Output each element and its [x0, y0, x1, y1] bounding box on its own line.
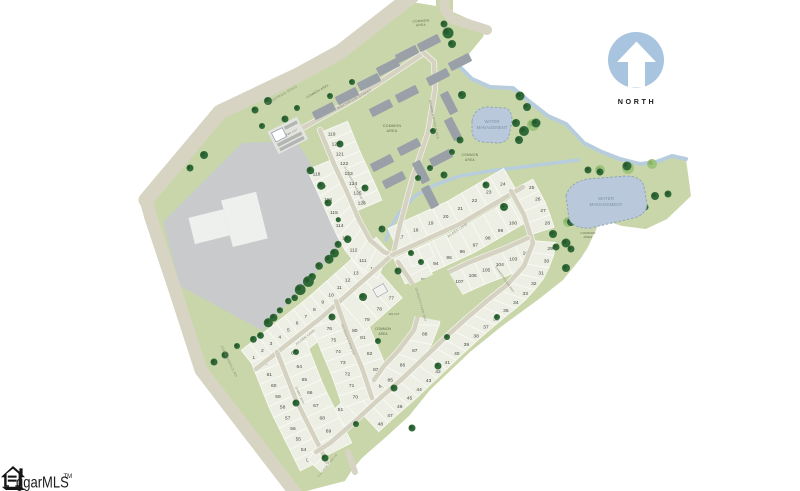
svg-text:56: 56: [290, 426, 296, 432]
svg-text:60: 60: [271, 383, 277, 389]
svg-text:AREA: AREA: [465, 158, 475, 162]
svg-text:10: 10: [328, 292, 334, 298]
svg-text:80: 80: [352, 328, 358, 334]
svg-text:64: 64: [296, 364, 302, 370]
svg-text:COMMON: COMMON: [462, 153, 479, 157]
svg-text:21: 21: [458, 206, 464, 212]
svg-text:57: 57: [285, 415, 291, 421]
svg-text:ggarMLS: ggarMLS: [16, 475, 69, 491]
svg-text:95: 95: [446, 255, 452, 261]
svg-text:MANAGEMENT: MANAGEMENT: [590, 202, 623, 207]
svg-text:8: 8: [313, 307, 316, 313]
svg-text:6: 6: [296, 321, 299, 327]
svg-text:47: 47: [387, 413, 393, 419]
svg-text:79: 79: [364, 317, 370, 323]
svg-text:100: 100: [509, 221, 517, 227]
svg-text:40: 40: [454, 351, 460, 357]
svg-text:34: 34: [513, 300, 519, 306]
svg-text:11: 11: [337, 285, 342, 291]
svg-text:114: 114: [336, 223, 344, 229]
svg-text:23: 23: [486, 190, 492, 196]
svg-text:2: 2: [261, 348, 264, 354]
svg-text:NORTH: NORTH: [618, 97, 657, 106]
svg-text:AREA: AREA: [416, 23, 427, 28]
svg-text:AREA: AREA: [387, 129, 398, 133]
svg-text:61: 61: [267, 372, 273, 378]
svg-text:COMMON: COMMON: [375, 327, 391, 331]
svg-text:74: 74: [335, 349, 341, 355]
svg-text:69: 69: [326, 428, 332, 434]
svg-text:1: 1: [252, 355, 255, 361]
svg-text:20: 20: [443, 214, 449, 220]
svg-text:72: 72: [345, 372, 351, 378]
svg-text:73: 73: [340, 360, 346, 366]
svg-text:97: 97: [473, 243, 479, 249]
svg-text:98: 98: [485, 235, 491, 241]
svg-text:AREA: AREA: [378, 332, 388, 336]
svg-text:82: 82: [367, 351, 373, 357]
svg-text:COMMON: COMMON: [383, 124, 402, 128]
svg-text:26: 26: [535, 196, 541, 202]
svg-text:13: 13: [353, 270, 359, 276]
svg-text:27: 27: [540, 208, 546, 214]
svg-text:121: 121: [336, 151, 344, 157]
svg-text:58: 58: [280, 405, 286, 411]
svg-text:24: 24: [500, 181, 506, 187]
svg-text:67: 67: [313, 403, 319, 409]
svg-text:65: 65: [302, 377, 308, 383]
svg-text:107: 107: [455, 279, 463, 285]
svg-text:28: 28: [545, 220, 551, 226]
svg-text:TM: TM: [64, 474, 73, 480]
svg-text:99: 99: [498, 228, 504, 234]
svg-text:71: 71: [349, 383, 355, 389]
svg-text:22: 22: [472, 198, 478, 204]
svg-text:48: 48: [378, 422, 384, 428]
svg-text:35: 35: [503, 308, 509, 314]
svg-text:3: 3: [270, 341, 273, 347]
svg-text:32: 32: [531, 281, 537, 287]
svg-text:119: 119: [328, 131, 336, 137]
svg-text:WATER: WATER: [484, 119, 499, 124]
svg-text:105: 105: [482, 267, 490, 273]
svg-text:19: 19: [428, 221, 434, 227]
svg-text:9: 9: [321, 300, 324, 306]
svg-text:111: 111: [359, 258, 367, 264]
svg-text:38: 38: [473, 333, 479, 339]
svg-text:25: 25: [529, 185, 535, 191]
svg-text:112: 112: [350, 248, 358, 254]
svg-text:42: 42: [435, 369, 441, 375]
svg-text:76: 76: [327, 326, 333, 332]
svg-text:46: 46: [397, 404, 403, 410]
svg-text:39: 39: [464, 342, 470, 348]
svg-text:66: 66: [307, 390, 313, 396]
svg-text:87: 87: [412, 348, 418, 354]
svg-text:18: 18: [413, 227, 419, 233]
svg-text:118: 118: [313, 171, 321, 177]
svg-text:45: 45: [407, 396, 413, 402]
svg-text:101 LOT: 101 LOT: [389, 312, 400, 316]
svg-text:85: 85: [387, 377, 393, 383]
svg-text:4: 4: [278, 334, 281, 340]
svg-text:AREA: AREA: [583, 235, 592, 239]
svg-text:30: 30: [544, 259, 550, 265]
svg-text:5: 5: [287, 327, 290, 333]
svg-text:59: 59: [275, 394, 281, 400]
svg-text:29: 29: [547, 246, 553, 252]
svg-text:70: 70: [353, 395, 359, 401]
svg-text:75: 75: [331, 337, 337, 343]
svg-text:103: 103: [509, 257, 517, 263]
svg-text:MANAGEMENT: MANAGEMENT: [477, 125, 508, 130]
svg-text:94: 94: [433, 261, 439, 267]
svg-text:115: 115: [330, 210, 338, 216]
svg-text:33: 33: [522, 291, 528, 297]
svg-text:86: 86: [400, 363, 406, 369]
svg-text:54: 54: [301, 447, 307, 453]
svg-text:31: 31: [538, 270, 544, 276]
svg-text:7: 7: [304, 314, 307, 320]
svg-text:44: 44: [416, 387, 422, 393]
svg-text:43: 43: [426, 378, 432, 384]
svg-text:77: 77: [389, 296, 395, 302]
svg-text:41: 41: [445, 360, 451, 366]
svg-text:106: 106: [469, 273, 477, 279]
svg-text:96: 96: [460, 249, 466, 255]
svg-text:12: 12: [345, 278, 351, 284]
svg-text:68: 68: [319, 416, 325, 422]
svg-text:37: 37: [483, 325, 489, 331]
svg-text:55: 55: [296, 437, 302, 443]
svg-text:88: 88: [422, 332, 428, 338]
svg-text:78: 78: [376, 306, 382, 312]
svg-text:WATER: WATER: [598, 196, 615, 201]
svg-text:81: 81: [360, 335, 366, 341]
